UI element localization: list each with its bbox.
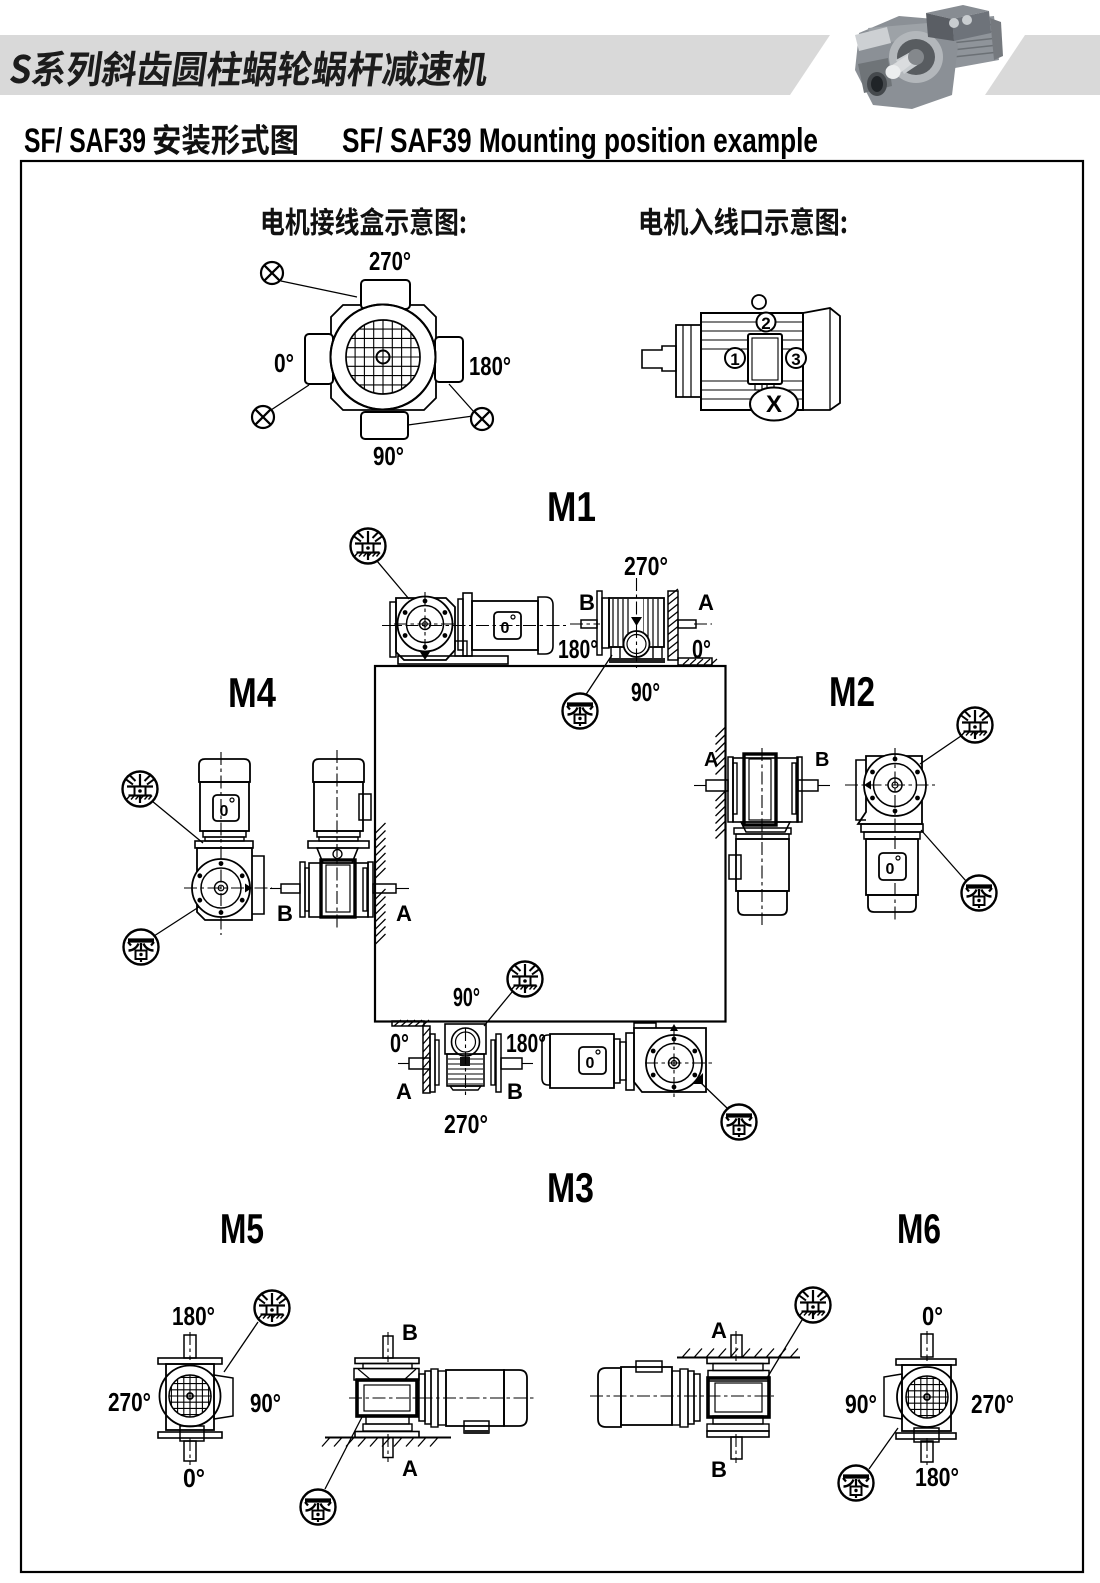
svg-text:A: A xyxy=(396,1079,412,1104)
svg-text:A: A xyxy=(711,1318,727,1343)
svg-text:M4: M4 xyxy=(228,669,277,716)
svg-text:M5: M5 xyxy=(220,1205,264,1252)
svg-text:0°: 0° xyxy=(390,1028,409,1058)
svg-text:2: 2 xyxy=(761,314,770,333)
svg-text:SF/ SAF39 Mounting position ex: SF/ SAF39 Mounting position example xyxy=(342,122,818,160)
svg-text:90°: 90° xyxy=(845,1389,877,1419)
svg-text:0°: 0° xyxy=(922,1301,943,1331)
svg-text:0: 0 xyxy=(501,620,510,637)
svg-text:90°: 90° xyxy=(250,1388,281,1418)
svg-text:M1: M1 xyxy=(547,483,596,530)
svg-text:270°: 270° xyxy=(108,1387,151,1417)
svg-text:270°: 270° xyxy=(369,246,411,276)
svg-text:B: B xyxy=(711,1457,727,1482)
svg-text:B: B xyxy=(277,901,293,926)
svg-text:90°: 90° xyxy=(631,677,660,707)
svg-text:180°: 180° xyxy=(469,351,511,381)
svg-text:M6: M6 xyxy=(897,1205,941,1252)
svg-text:270°: 270° xyxy=(624,551,668,581)
svg-text:180°: 180° xyxy=(915,1462,959,1492)
svg-text:SF/ SAF39: SF/ SAF39 xyxy=(24,122,146,160)
svg-text:1: 1 xyxy=(730,350,739,369)
svg-text:A: A xyxy=(704,749,718,771)
svg-text:180°: 180° xyxy=(506,1028,546,1058)
svg-text:A: A xyxy=(402,1456,418,1481)
svg-text:M3: M3 xyxy=(547,1164,594,1211)
svg-text:0°: 0° xyxy=(274,348,294,378)
svg-text:180°: 180° xyxy=(558,634,598,664)
svg-text:A: A xyxy=(396,901,412,926)
svg-text:0°: 0° xyxy=(183,1463,205,1493)
svg-text:B: B xyxy=(507,1079,523,1104)
svg-text:M2: M2 xyxy=(829,668,875,715)
svg-text:270°: 270° xyxy=(444,1109,488,1139)
svg-text:0°: 0° xyxy=(692,634,711,664)
svg-text:0: 0 xyxy=(586,1055,595,1072)
svg-text:3: 3 xyxy=(791,350,800,369)
svg-text:B: B xyxy=(402,1320,418,1345)
svg-text:A: A xyxy=(698,590,714,615)
svg-text:B: B xyxy=(579,590,595,615)
svg-text:90°: 90° xyxy=(373,441,404,471)
svg-text:B: B xyxy=(815,749,829,771)
svg-text:X: X xyxy=(766,391,782,418)
svg-text:90°: 90° xyxy=(453,982,480,1012)
svg-text:180°: 180° xyxy=(172,1301,215,1331)
svg-text:270°: 270° xyxy=(971,1389,1014,1419)
svg-text:0: 0 xyxy=(886,861,895,878)
